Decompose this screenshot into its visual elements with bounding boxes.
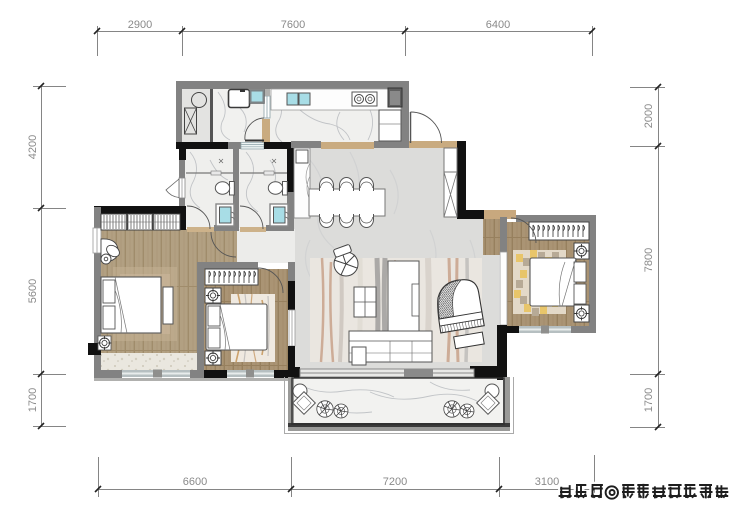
svg-text:3100: 3100 [535, 476, 559, 488]
svg-text:4200: 4200 [27, 135, 39, 159]
svg-text:1700: 1700 [27, 388, 39, 412]
svg-text:6600: 6600 [183, 476, 207, 488]
svg-text:5600: 5600 [27, 279, 39, 303]
svg-text:7800: 7800 [643, 248, 655, 272]
svg-text:1700: 1700 [643, 388, 655, 412]
svg-text:2900: 2900 [128, 19, 152, 31]
svg-text:7200: 7200 [383, 476, 407, 488]
svg-text:6400: 6400 [486, 19, 510, 31]
svg-text:7600: 7600 [281, 19, 305, 31]
svg-text:2000: 2000 [643, 104, 655, 128]
